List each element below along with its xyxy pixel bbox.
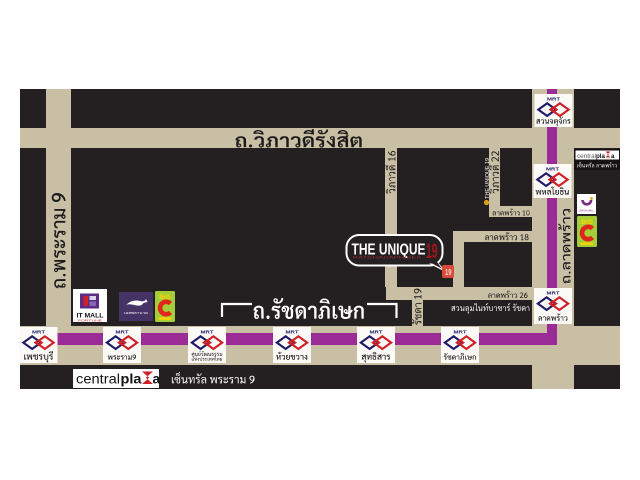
svg-text:MRT: MRT — [116, 329, 129, 334]
svg-text:19: 19 — [445, 268, 452, 277]
svg-text:MRT: MRT — [454, 329, 467, 334]
svg-text:เอสพลานาด: เอสพลานาด — [124, 311, 149, 315]
svg-text:central: central — [76, 372, 120, 387]
svg-text:pla: pla — [121, 372, 143, 387]
svg-text:a: a — [611, 153, 615, 160]
svg-text:MRT: MRT — [286, 329, 299, 334]
svg-text:pla: pla — [596, 153, 606, 160]
svg-text:MRT: MRT — [547, 96, 560, 101]
svg-text:19: 19 — [426, 240, 438, 263]
svg-text:a: a — [153, 372, 161, 387]
svg-text:MRT: MRT — [201, 329, 214, 334]
svg-text:central: central — [577, 153, 596, 160]
svg-text:MRT: MRT — [547, 290, 560, 295]
svg-text:MRT: MRT — [546, 166, 559, 171]
svg-text:THE UNIQUE 19: THE UNIQUE 19 — [485, 158, 491, 199]
svg-text:MRT: MRT — [370, 329, 383, 334]
svg-text:FORTUNE: FORTUNE — [78, 319, 102, 323]
svg-text:RATCHADAPHISEK: RATCHADAPHISEK — [353, 256, 424, 260]
svg-text:MRT: MRT — [32, 329, 45, 334]
svg-text:UNION MALL: UNION MALL — [579, 209, 595, 213]
